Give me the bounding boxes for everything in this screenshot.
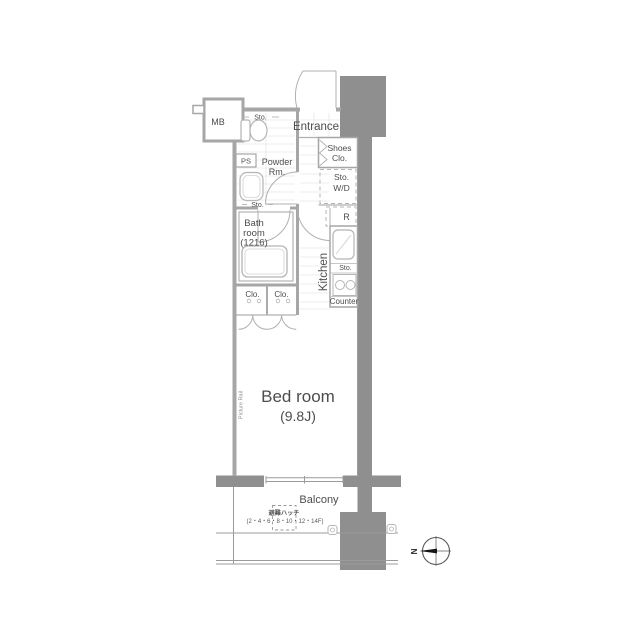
closet-door-arc xyxy=(253,315,267,329)
kitchen-sto-label: Sto. xyxy=(339,265,352,272)
toilet-tank-icon xyxy=(241,120,250,141)
closet-rod-mark xyxy=(257,299,261,303)
bathtub-icon xyxy=(242,246,287,277)
shoes-clo-label-1: Shoes xyxy=(327,143,351,153)
wall-band-left xyxy=(216,476,264,488)
balcony-drain-icon xyxy=(387,525,396,534)
powder-label-1: Powder xyxy=(262,157,293,167)
washbasin-icon xyxy=(240,173,263,201)
closet-door-arc xyxy=(239,315,253,329)
pillar-top-right xyxy=(340,76,386,137)
picture-rail-label: Picture Rail xyxy=(239,391,245,419)
closet-door-arc xyxy=(267,315,282,329)
bedroom-size-label: (9.8J) xyxy=(280,408,316,424)
balcony-window xyxy=(266,476,343,484)
pillar-bottom-right xyxy=(340,512,386,570)
compass: N xyxy=(410,536,451,566)
entrance-label: Entrance xyxy=(293,121,339,133)
bath-label-3: (1216) xyxy=(240,238,267,249)
toilet-sto-label: Sto. xyxy=(254,115,267,122)
wall-right xyxy=(358,137,373,476)
closet-right-label: Clo. xyxy=(274,290,288,299)
balcony-label: Balcony xyxy=(299,494,339,506)
basin-sto-label: Sto. xyxy=(251,202,264,209)
hall-door-arc xyxy=(298,208,331,241)
fridge-label: R xyxy=(343,212,350,222)
kitchen-label: Kitchen xyxy=(318,253,330,291)
wall-stub-below xyxy=(358,476,373,513)
powder-label-2: Rm. xyxy=(269,167,286,177)
closet-rod-mark xyxy=(286,299,290,303)
sto-wd-label-1: Sto. xyxy=(334,172,349,182)
toilet-bowl-icon xyxy=(250,120,267,141)
floor-plan-canvas: N MB Sto. PS Powder Rm. Sto. Bath room (… xyxy=(0,0,640,640)
sto-wd-label-2: W/D xyxy=(333,183,350,193)
compass-north-label: N xyxy=(410,548,419,554)
closet-door-arc xyxy=(282,315,297,329)
hatch-name-label: 避難ハッチ xyxy=(269,509,300,517)
entrance-door-arc xyxy=(295,71,303,108)
mb-tab xyxy=(193,106,204,114)
hatch-floors-label: (2・4・6・8・10・12・14F) xyxy=(246,519,323,525)
closet-left-label: Clo. xyxy=(245,290,259,299)
counter-label: Counter xyxy=(330,297,359,306)
drain-left xyxy=(328,526,337,535)
ps-label: PS xyxy=(241,157,251,166)
drain-right xyxy=(387,525,396,534)
closet-rod-mark xyxy=(276,299,280,303)
floor-plan-svg: N MB Sto. PS Powder Rm. Sto. Bath room (… xyxy=(0,0,640,640)
shoes-clo-label-2: Clo. xyxy=(332,153,347,163)
closet-rod-mark xyxy=(247,299,251,303)
mb-label: MB xyxy=(211,117,225,127)
balcony-drain-icon xyxy=(328,526,337,535)
bedroom-name-label: Bed room xyxy=(261,387,335,406)
